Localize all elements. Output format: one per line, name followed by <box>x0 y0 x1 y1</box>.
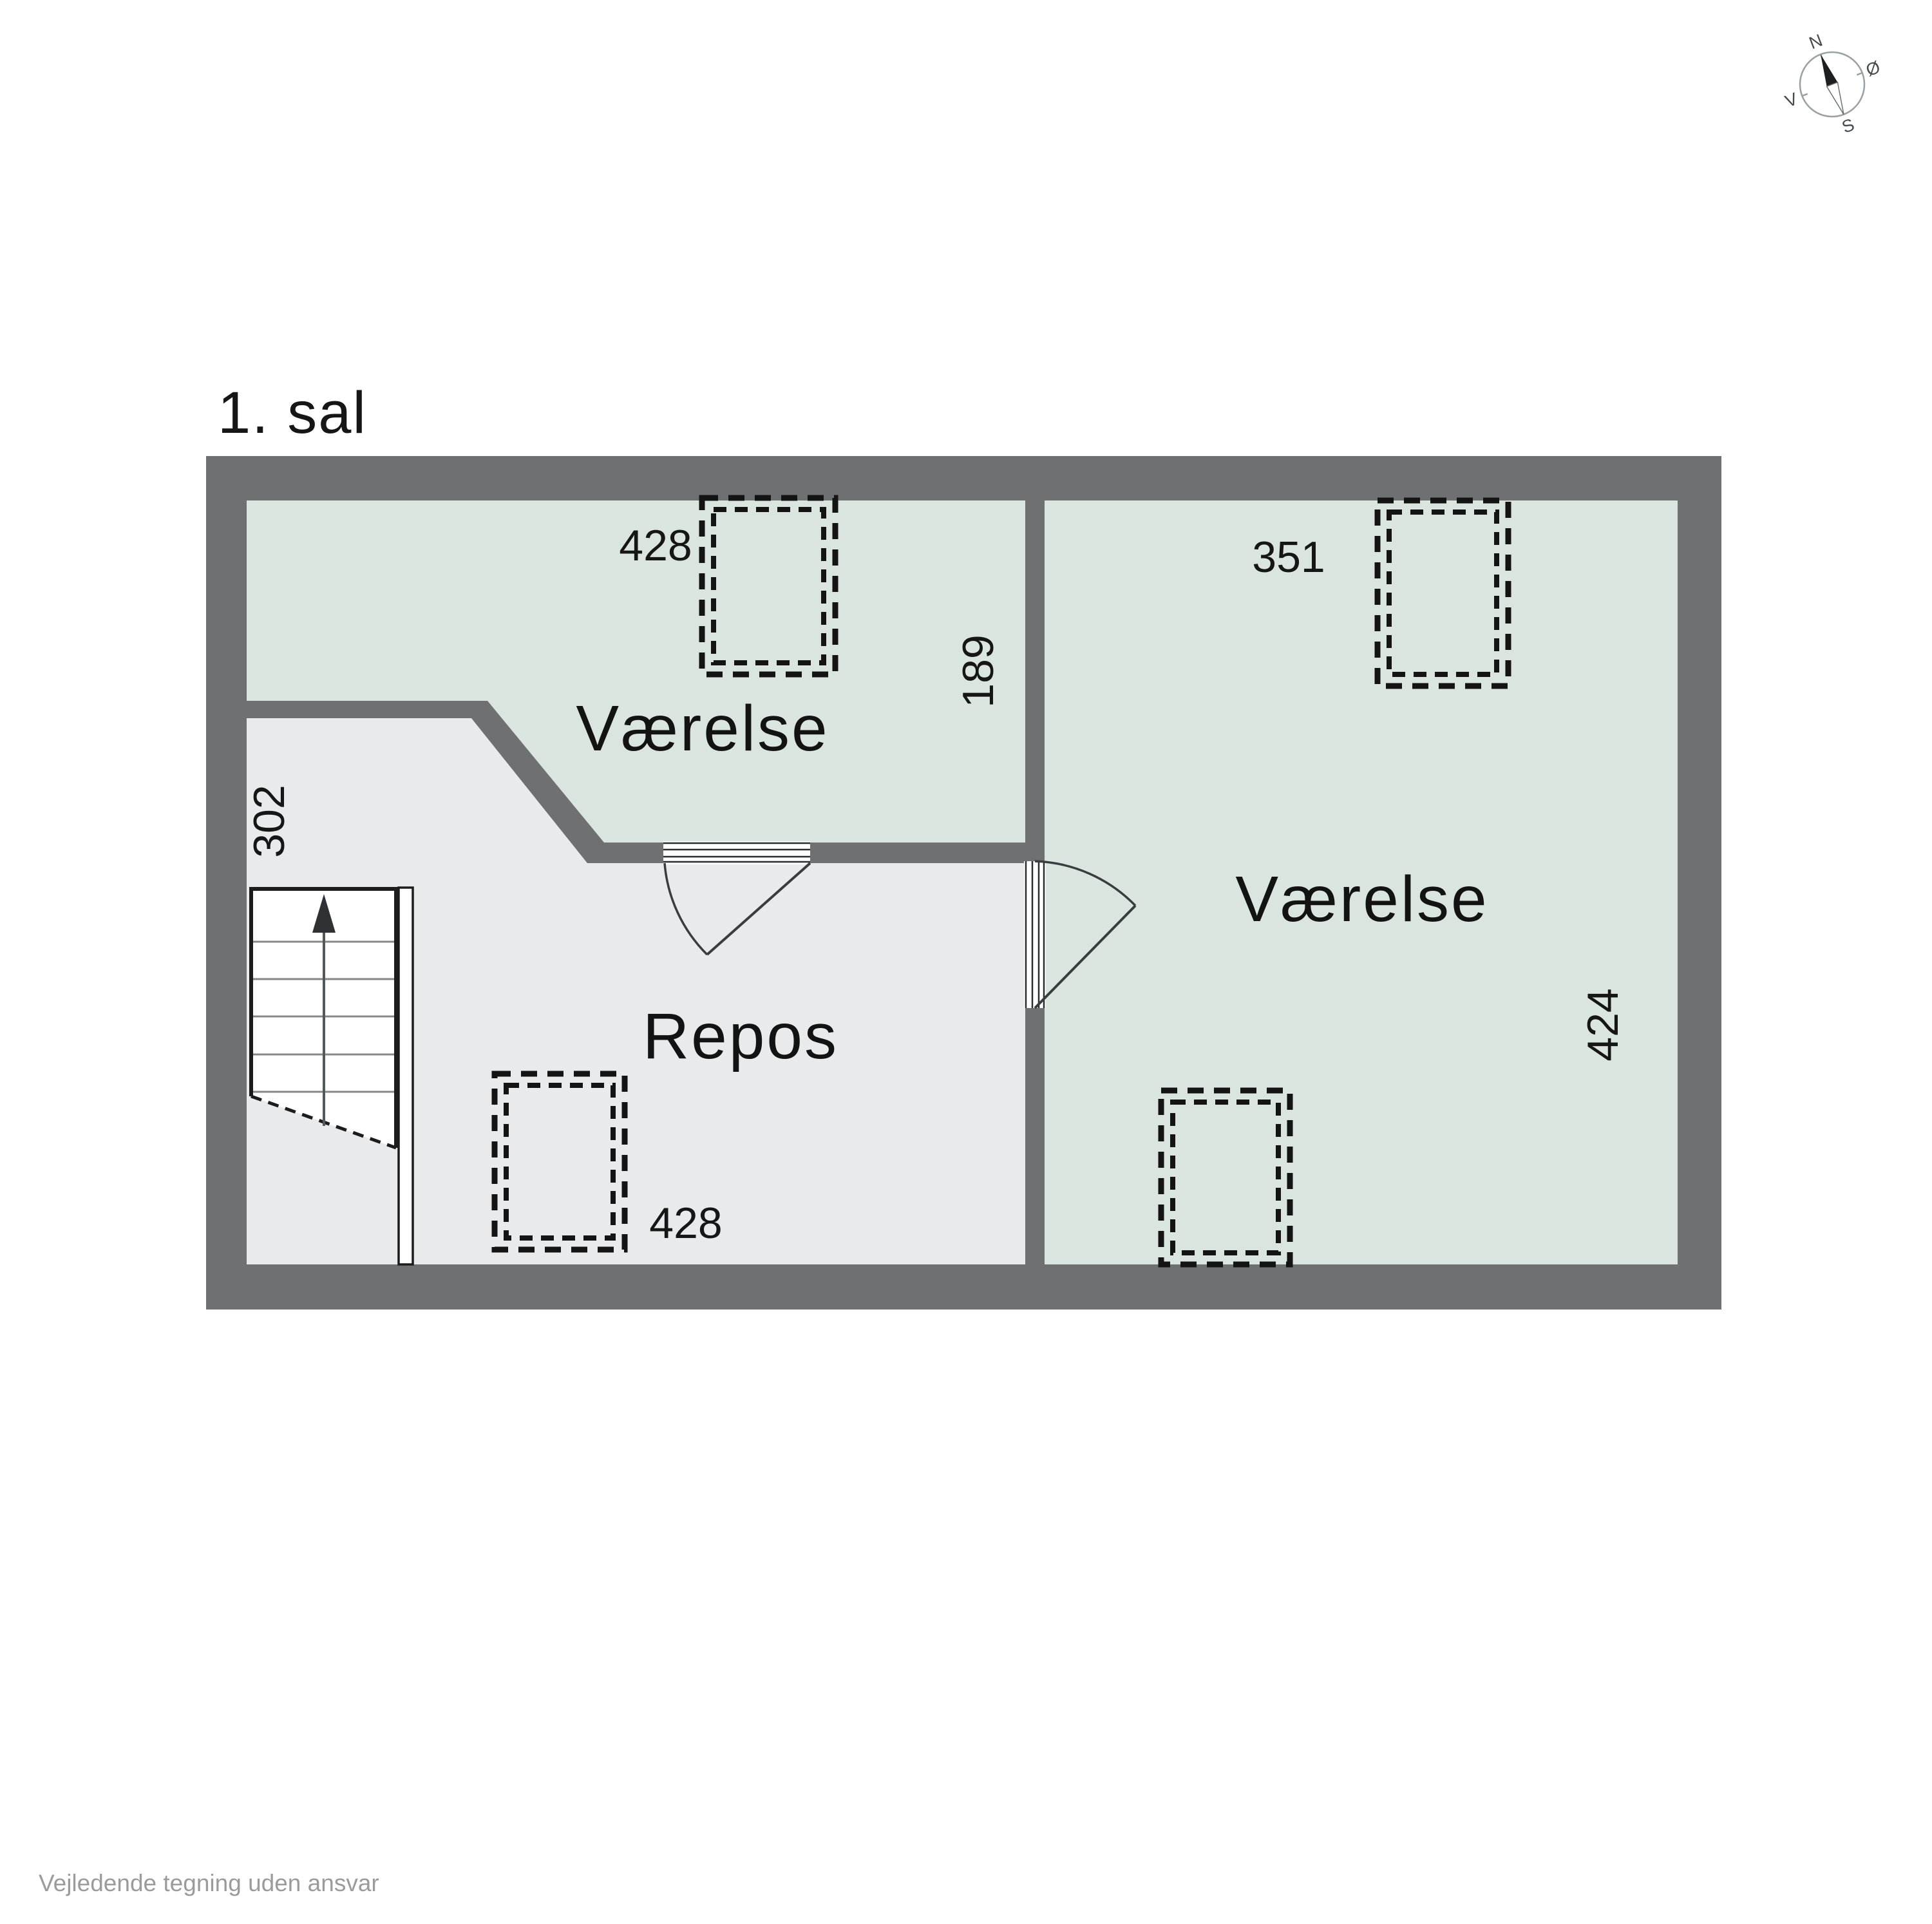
interior-wall-vertical-top <box>1025 500 1045 861</box>
compass-n-label: N <box>1806 30 1825 53</box>
compass-needle-south <box>1827 82 1850 117</box>
door2-jamb <box>1024 861 1046 1008</box>
compass-w-label: V <box>1783 89 1801 111</box>
stair-railing <box>399 888 413 1264</box>
door1-jamb <box>663 841 810 864</box>
compass-s-label: S <box>1839 115 1857 137</box>
interior-wall-horizontal <box>810 843 1025 863</box>
floor-plan-page: 1. sal Værelse Værelse Repos 428 189 351… <box>0 0 1932 1924</box>
room-right-label: Værelse <box>1235 863 1488 935</box>
compass-needle-north <box>1815 52 1838 86</box>
room-top-left-label: Værelse <box>576 692 829 765</box>
dim-room-right-width: 351 <box>1252 533 1325 582</box>
page-title: 1. sal <box>218 380 367 446</box>
disclaimer-text: Vejledende tegning uden ansvar <box>39 1870 379 1896</box>
compass-rose-icon: N Ø S V <box>1766 15 1899 153</box>
dim-room-right-height: 424 <box>1578 988 1627 1061</box>
compass-e-label: Ø <box>1863 57 1882 81</box>
dim-repos-height: 302 <box>245 785 294 857</box>
dim-room-top-left-width: 428 <box>619 521 692 570</box>
interior-wall-vertical-bottom <box>1025 1008 1045 1264</box>
dim-room-top-left-depth: 189 <box>954 634 1003 707</box>
repos-label: Repos <box>643 1000 838 1072</box>
dim-repos-width: 428 <box>649 1199 722 1248</box>
